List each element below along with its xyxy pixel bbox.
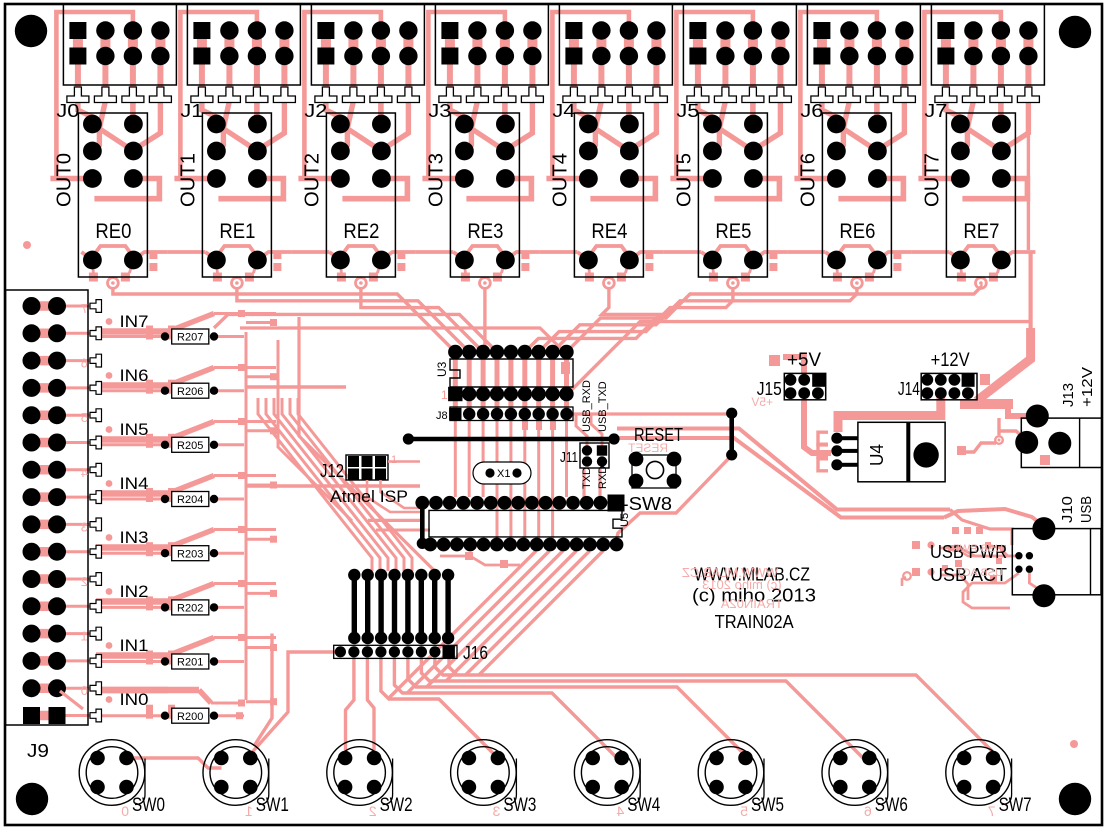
- svg-text:TXD: TXD: [581, 467, 593, 489]
- svg-text:OUT2: OUT2: [301, 153, 323, 207]
- svg-text:+5V: +5V: [787, 350, 821, 371]
- svg-text:USB: USB: [1078, 496, 1095, 523]
- svg-text:J0: J0: [56, 101, 79, 121]
- svg-text:R200: R200: [177, 711, 203, 723]
- svg-text:R205: R205: [177, 440, 203, 452]
- svg-text:J13: J13: [1060, 383, 1077, 407]
- svg-text:3: 3: [492, 803, 500, 819]
- svg-text:SW0: SW0: [132, 795, 165, 816]
- svg-text:6: 6: [81, 356, 88, 371]
- svg-text:SW2: SW2: [380, 795, 413, 816]
- svg-text:J1: J1: [180, 101, 203, 121]
- svg-text:J5: J5: [676, 101, 699, 121]
- svg-text:J7: J7: [924, 101, 947, 121]
- svg-text:RE1: RE1: [219, 220, 255, 243]
- svg-text:1: 1: [81, 629, 88, 644]
- svg-text:X1: X1: [497, 468, 510, 480]
- svg-text:IN2: IN2: [120, 582, 149, 601]
- svg-text:IN7: IN7: [120, 312, 149, 331]
- svg-text:OUT5: OUT5: [673, 153, 695, 207]
- svg-text:J16: J16: [463, 643, 488, 663]
- svg-text:J2: J2: [304, 101, 327, 121]
- svg-text:J3: J3: [428, 101, 451, 121]
- svg-text:SW3: SW3: [503, 795, 536, 816]
- svg-text:5: 5: [81, 410, 88, 425]
- svg-text:U4: U4: [867, 444, 887, 466]
- svg-text:RXD: RXD: [597, 466, 609, 489]
- svg-text:+12V: +12V: [1079, 367, 1096, 407]
- svg-text:TRAIN02A: TRAIN02A: [720, 596, 782, 611]
- svg-text:0: 0: [121, 803, 129, 819]
- svg-text:RE0: RE0: [95, 220, 131, 243]
- svg-text:4: 4: [616, 803, 624, 819]
- svg-text:R204: R204: [177, 494, 203, 506]
- svg-text:IN5: IN5: [120, 420, 149, 439]
- svg-text:1: 1: [245, 803, 253, 819]
- svg-text:+5V: +5V: [751, 395, 773, 409]
- svg-text:5: 5: [740, 803, 748, 819]
- svg-text:OUT1: OUT1: [177, 153, 199, 207]
- svg-text:U5: U5: [619, 513, 631, 527]
- svg-text:J10: J10: [1059, 496, 1076, 523]
- svg-text:Atmel ISP: Atmel ISP: [330, 487, 408, 506]
- svg-text:IN1: IN1: [120, 636, 149, 655]
- svg-text:1: 1: [391, 454, 397, 466]
- svg-text:R206: R206: [177, 386, 203, 398]
- svg-text:J8: J8: [436, 410, 448, 422]
- svg-text:USB PWR: USB PWR: [952, 543, 1003, 555]
- svg-text:7: 7: [988, 803, 996, 819]
- svg-text:RE3: RE3: [467, 220, 503, 243]
- svg-text:6: 6: [864, 803, 872, 819]
- svg-text:+12V: +12V: [931, 350, 970, 371]
- svg-text:(c) miho 2013: (c) miho 2013: [702, 577, 781, 592]
- svg-text:OUT7: OUT7: [921, 153, 943, 207]
- svg-text:J4: J4: [552, 101, 575, 121]
- svg-text:J6: J6: [800, 101, 823, 121]
- svg-text:IN4: IN4: [120, 474, 149, 493]
- svg-text:OUT4: OUT4: [549, 153, 571, 207]
- svg-text:U3: U3: [435, 361, 449, 377]
- svg-text:IN6: IN6: [120, 366, 149, 385]
- svg-text:OUT3: OUT3: [425, 153, 447, 207]
- svg-text:R207: R207: [177, 332, 203, 344]
- svg-text:7: 7: [81, 301, 88, 316]
- svg-text:J9: J9: [27, 741, 49, 761]
- svg-text:RE7: RE7: [963, 220, 999, 243]
- svg-text:TRAIN02A: TRAIN02A: [715, 612, 794, 632]
- svg-text:R202: R202: [177, 603, 203, 615]
- svg-text:2: 2: [81, 574, 88, 589]
- svg-text:RE4: RE4: [591, 220, 627, 243]
- svg-text:RE2: RE2: [343, 220, 379, 243]
- svg-text:RE6: RE6: [839, 220, 875, 243]
- svg-text:0: 0: [81, 683, 88, 698]
- svg-text:J11: J11: [560, 449, 578, 466]
- svg-text:USB ACT: USB ACT: [956, 567, 1003, 579]
- svg-text:OUT6: OUT6: [797, 153, 819, 207]
- svg-text:R203: R203: [177, 548, 203, 560]
- svg-text:IN3: IN3: [120, 528, 149, 547]
- svg-text:OUT0: OUT0: [53, 153, 75, 207]
- svg-text:J12: J12: [320, 461, 344, 481]
- svg-text:3: 3: [81, 519, 88, 534]
- svg-text:USB_RXD: USB_RXD: [581, 380, 593, 432]
- svg-text:IN0: IN0: [120, 690, 149, 709]
- svg-text:RE5: RE5: [715, 220, 751, 243]
- svg-text:SW6: SW6: [875, 795, 908, 816]
- svg-text:R201: R201: [177, 657, 203, 669]
- svg-text:1: 1: [441, 388, 448, 402]
- svg-text:-SW8: -SW8: [622, 494, 672, 514]
- svg-text:SW7: SW7: [999, 795, 1032, 816]
- svg-text:J14: J14: [898, 379, 920, 399]
- svg-text:SW1: SW1: [256, 795, 289, 816]
- svg-text:SW4: SW4: [627, 795, 660, 816]
- svg-text:SW5: SW5: [751, 795, 784, 816]
- svg-text:2: 2: [369, 803, 377, 819]
- svg-text:USB_TXD: USB_TXD: [597, 381, 609, 432]
- svg-text:4: 4: [81, 465, 88, 480]
